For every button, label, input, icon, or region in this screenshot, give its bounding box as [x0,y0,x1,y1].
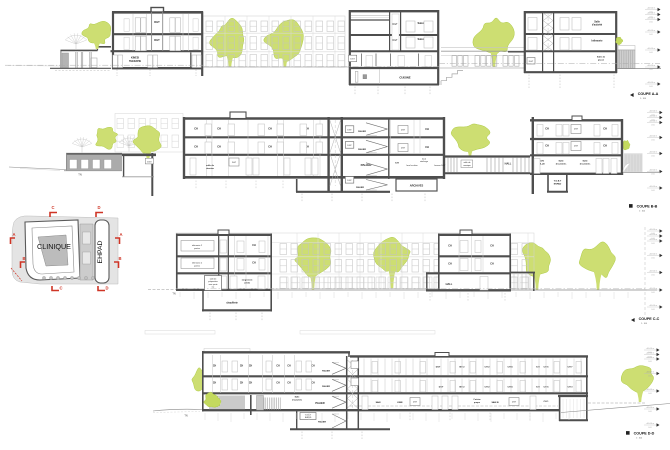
svg-text:infirmerie 2: infirmerie 2 [192,262,203,265]
svg-text:CH: CH [276,366,280,368]
svg-text:CH: CH [194,146,198,149]
svg-text:ARCHIVES: ARCHIVES [410,184,424,188]
svg-text:SAM: SAM [376,401,381,404]
svg-text:CH: CH [425,128,429,131]
svg-text:local: local [422,159,427,161]
svg-text:musique: musique [463,165,471,167]
svg-text:CH 2: CH 2 [485,387,491,389]
svg-text:CH: CH [249,366,253,368]
svg-text:CH: CH [213,383,217,385]
svg-text:C: C [51,205,54,210]
svg-text:COUPE B-B: COUPE B-B [637,205,658,209]
svg-text:CUISINE: CUISINE [399,76,410,80]
svg-text:0.00: 0.00 [648,411,652,413]
svg-text:COUPE D-D: COUPE D-D [634,432,655,436]
svg-text:DGT: DGT [154,20,160,24]
svg-text:salle de: salle de [210,279,217,281]
svg-text:CH: CH [545,145,549,148]
svg-text:+00.00 m: +00.00 m [649,135,658,137]
svg-text:DGT: DGT [439,387,444,389]
svg-text:0.00: 0.00 [651,174,655,176]
svg-text:HALL: HALL [446,283,453,286]
svg-text:T.G.B.T: T.G.B.T [305,415,312,417]
svg-text:local archive: local archive [406,165,418,167]
svg-text:+00.00 m: +00.00 m [647,82,656,84]
svg-text:préparation: préparation [208,280,218,283]
svg-text:B: B [118,256,121,261]
svg-text:0.00: 0.00 [649,34,653,36]
svg-text:0.00: 0.00 [648,361,652,363]
svg-text:+00.00 m: +00.00 m [649,110,658,112]
svg-text:PALIER: PALIER [322,370,330,373]
svg-text:+00.00 m: +00.00 m [649,305,658,307]
svg-text:CH: CH [287,383,291,385]
svg-text:B: B [22,256,25,261]
svg-text:+00.00 m: +00.00 m [649,186,658,188]
svg-text:CH: CH [490,245,494,248]
svg-text:1 : 100: 1 : 100 [636,438,642,440]
svg-text:1 : 100: 1 : 100 [640,98,646,100]
svg-text:+00.00 m: +00.00 m [649,239,658,241]
svg-text:CH: CH [448,245,452,248]
svg-text:1 : 100: 1 : 100 [639,211,645,213]
svg-text:portes: portes [194,247,200,250]
svg-text:D: D [97,205,100,210]
svg-text:infirmerie 2: infirmerie 2 [192,244,203,247]
svg-text:EHPAD: EHPAD [305,416,312,419]
svg-text:pause: pause [598,60,605,62]
svg-text:salle de: salle de [464,162,472,164]
svg-text:+00.00 m: +00.00 m [649,270,658,272]
svg-text:CH: CH [240,383,244,385]
svg-text:CH: CH [425,146,429,149]
svg-text:0.00: 0.00 [651,309,655,311]
svg-text:CH 2: CH 2 [485,367,491,369]
svg-text:CLINIQUE: CLINIQUE [37,242,71,251]
svg-text:PALIER: PALIER [356,186,364,189]
svg-text:Salle: Salle [295,397,301,399]
svg-text:rangement: rangement [242,279,253,282]
svg-text:T.G.B.T: T.G.B.T [554,181,562,183]
svg-text:PALIER: PALIER [358,130,366,133]
svg-text:CH: CH [249,383,253,385]
svg-text:CH: CH [603,128,607,131]
svg-text:THERAPIE: THERAPIE [129,60,141,63]
svg-text:PALIER: PALIER [322,385,330,388]
svg-text:CH 3: CH 3 [568,387,574,389]
svg-text:propre: propre [474,402,481,404]
svg-text:BU 2: BU 2 [460,367,466,369]
svg-text:CH: CH [194,128,198,131]
svg-text:0.00: 0.00 [651,292,655,294]
svg-text:C: C [59,286,62,291]
svg-text:Cuisine: Cuisine [473,399,481,401]
svg-text:CH: CH [240,366,244,368]
svg-text:CH: CH [311,383,315,385]
svg-text:+00.00 m: +00.00 m [646,357,655,359]
svg-text:CH 1: CH 1 [544,401,550,403]
svg-text:iso: iso [212,287,214,289]
svg-text:CH: CH [545,128,549,131]
svg-text:CH: CH [490,263,494,266]
svg-text:+00.00 m: +00.00 m [646,371,655,373]
svg-text:CH: CH [213,366,217,368]
svg-text:+00.00 m: +00.00 m [649,229,658,231]
svg-text:CH 4: CH 4 [508,366,514,369]
svg-text:PALIER: PALIER [315,401,324,405]
svg-text:+00.00 m: +00.00 m [649,169,658,171]
svg-text:EHPAD: EHPAD [97,240,104,263]
svg-text:+00.00 m: +00.00 m [649,253,658,255]
svg-text:0.00: 0.00 [651,190,655,192]
svg-text:ENFAD: ENFAD [554,183,562,186]
svg-text:0.00: 0.00 [649,22,653,24]
svg-text:0.00: 0.00 [651,156,655,158]
svg-text:DGT: DGT [154,38,160,42]
svg-text:CH: CH [268,146,272,149]
svg-text:CH: CH [603,145,607,148]
svg-text:0.00: 0.00 [649,86,653,88]
svg-text:+00.00 m: +00.00 m [649,115,658,117]
svg-text:+00.00 m: +00.00 m [647,12,656,14]
svg-text:TN: TN [78,173,82,177]
svg-text:+00.00 m: +00.00 m [649,120,658,122]
svg-text:Infirmerie: Infirmerie [592,40,604,43]
svg-text:0.00: 0.00 [651,125,655,127]
svg-text:S.R: S.R [536,387,540,389]
svg-text:BU 2: BU 2 [460,387,466,389]
svg-text:0.00: 0.00 [649,69,653,71]
svg-text:+00.00 m: +00.00 m [646,389,655,391]
svg-text:+00.00 m: +00.00 m [649,288,658,290]
svg-text:HALL: HALL [505,163,512,166]
svg-text:DGT: DGT [147,161,152,163]
svg-text:D: D [105,286,108,291]
svg-text:CH 4: CH 4 [508,386,514,389]
svg-text:CH: CH [252,262,256,265]
svg-text:CH: CH [252,244,256,247]
svg-text:réunion: réunion [206,168,215,170]
svg-text:A: A [119,232,122,237]
svg-text:Salle: Salle [558,161,564,163]
svg-text:+00.00 m: +00.00 m [647,17,656,19]
svg-text:+00.00 m: +00.00 m [646,407,655,409]
svg-text:0.00: 0.00 [648,376,652,378]
svg-text:CH: CH [311,366,315,368]
svg-text:salle de: salle de [206,165,215,167]
svg-text:+00.00 m: +00.00 m [646,348,655,350]
svg-text:0.00: 0.00 [648,393,652,395]
svg-text:0.00: 0.00 [648,427,652,429]
svg-text:+00.00 m: +00.00 m [646,423,655,425]
svg-text:0.00: 0.00 [651,243,655,245]
svg-text:d'activités: d'activités [292,399,303,402]
svg-text:+00.00 m: +00.00 m [649,151,658,153]
svg-text:COUPE C-C: COUPE C-C [639,317,660,321]
svg-text:PALIER: PALIER [361,163,373,167]
svg-text:SAM B: SAM B [491,401,498,404]
svg-text:CH: CH [448,263,452,266]
svg-text:0.00: 0.00 [649,52,653,54]
svg-text:chaufferie: chaufferie [226,302,238,305]
svg-text:CH 5: CH 5 [544,387,550,389]
svg-text:TN: TN [172,293,175,296]
svg-text:DGT: DGT [436,367,441,369]
svg-text:CH: CH [276,383,280,385]
svg-text:KINE: KINE [397,402,403,404]
svg-text:stockage: stockage [420,160,429,163]
svg-text:+00.00 m: +00.00 m [647,65,656,67]
svg-text:avec porte: avec porte [209,283,218,286]
svg-text:CH: CH [287,366,291,368]
svg-text:+00.00 m: +00.00 m [647,30,656,32]
svg-text:DGT: DGT [529,61,534,63]
svg-text:S.R: S.R [536,367,540,369]
svg-text:Salle de: Salle de [597,57,606,59]
svg-text:0.00: 0.00 [651,258,655,260]
svg-text:1 : 100: 1 : 100 [641,323,647,325]
svg-text:CH: CH [268,128,272,131]
svg-text:+00.00 m: +00.00 m [646,352,655,354]
svg-text:S.R: S.R [395,163,399,165]
svg-text:d'activité: d'activité [592,24,603,27]
svg-text:+00.00 m: +00.00 m [647,7,656,9]
svg-text:CH 7: CH 7 [568,367,574,369]
svg-text:stérile: stérile [244,282,251,285]
svg-text:DGT: DGT [392,39,398,42]
svg-text:DGT: DGT [350,59,355,61]
svg-text:bureau DGT: bureau DGT [434,165,446,167]
svg-text:COUPE A-A: COUPE A-A [638,92,659,96]
svg-text:TN: TN [184,415,187,418]
svg-text:0.00: 0.00 [651,140,655,142]
svg-text:A: A [12,232,15,237]
svg-text:+00.00 m: +00.00 m [647,48,656,50]
svg-text:d'activités: d'activités [580,163,591,166]
svg-text:Salle: Salle [582,161,588,163]
svg-text:+00.00 m: +00.00 m [649,234,658,236]
svg-text:CH: CH [217,128,221,131]
svg-text:d'activités: d'activités [556,163,567,166]
svg-text:PALIER: PALIER [358,148,366,151]
svg-text:CH: CH [217,146,221,149]
svg-text:CH 6: CH 6 [544,367,550,369]
svg-text:0.00: 0.00 [651,275,655,277]
svg-text:portes: portes [194,265,200,268]
svg-text:DGT: DGT [392,23,398,26]
